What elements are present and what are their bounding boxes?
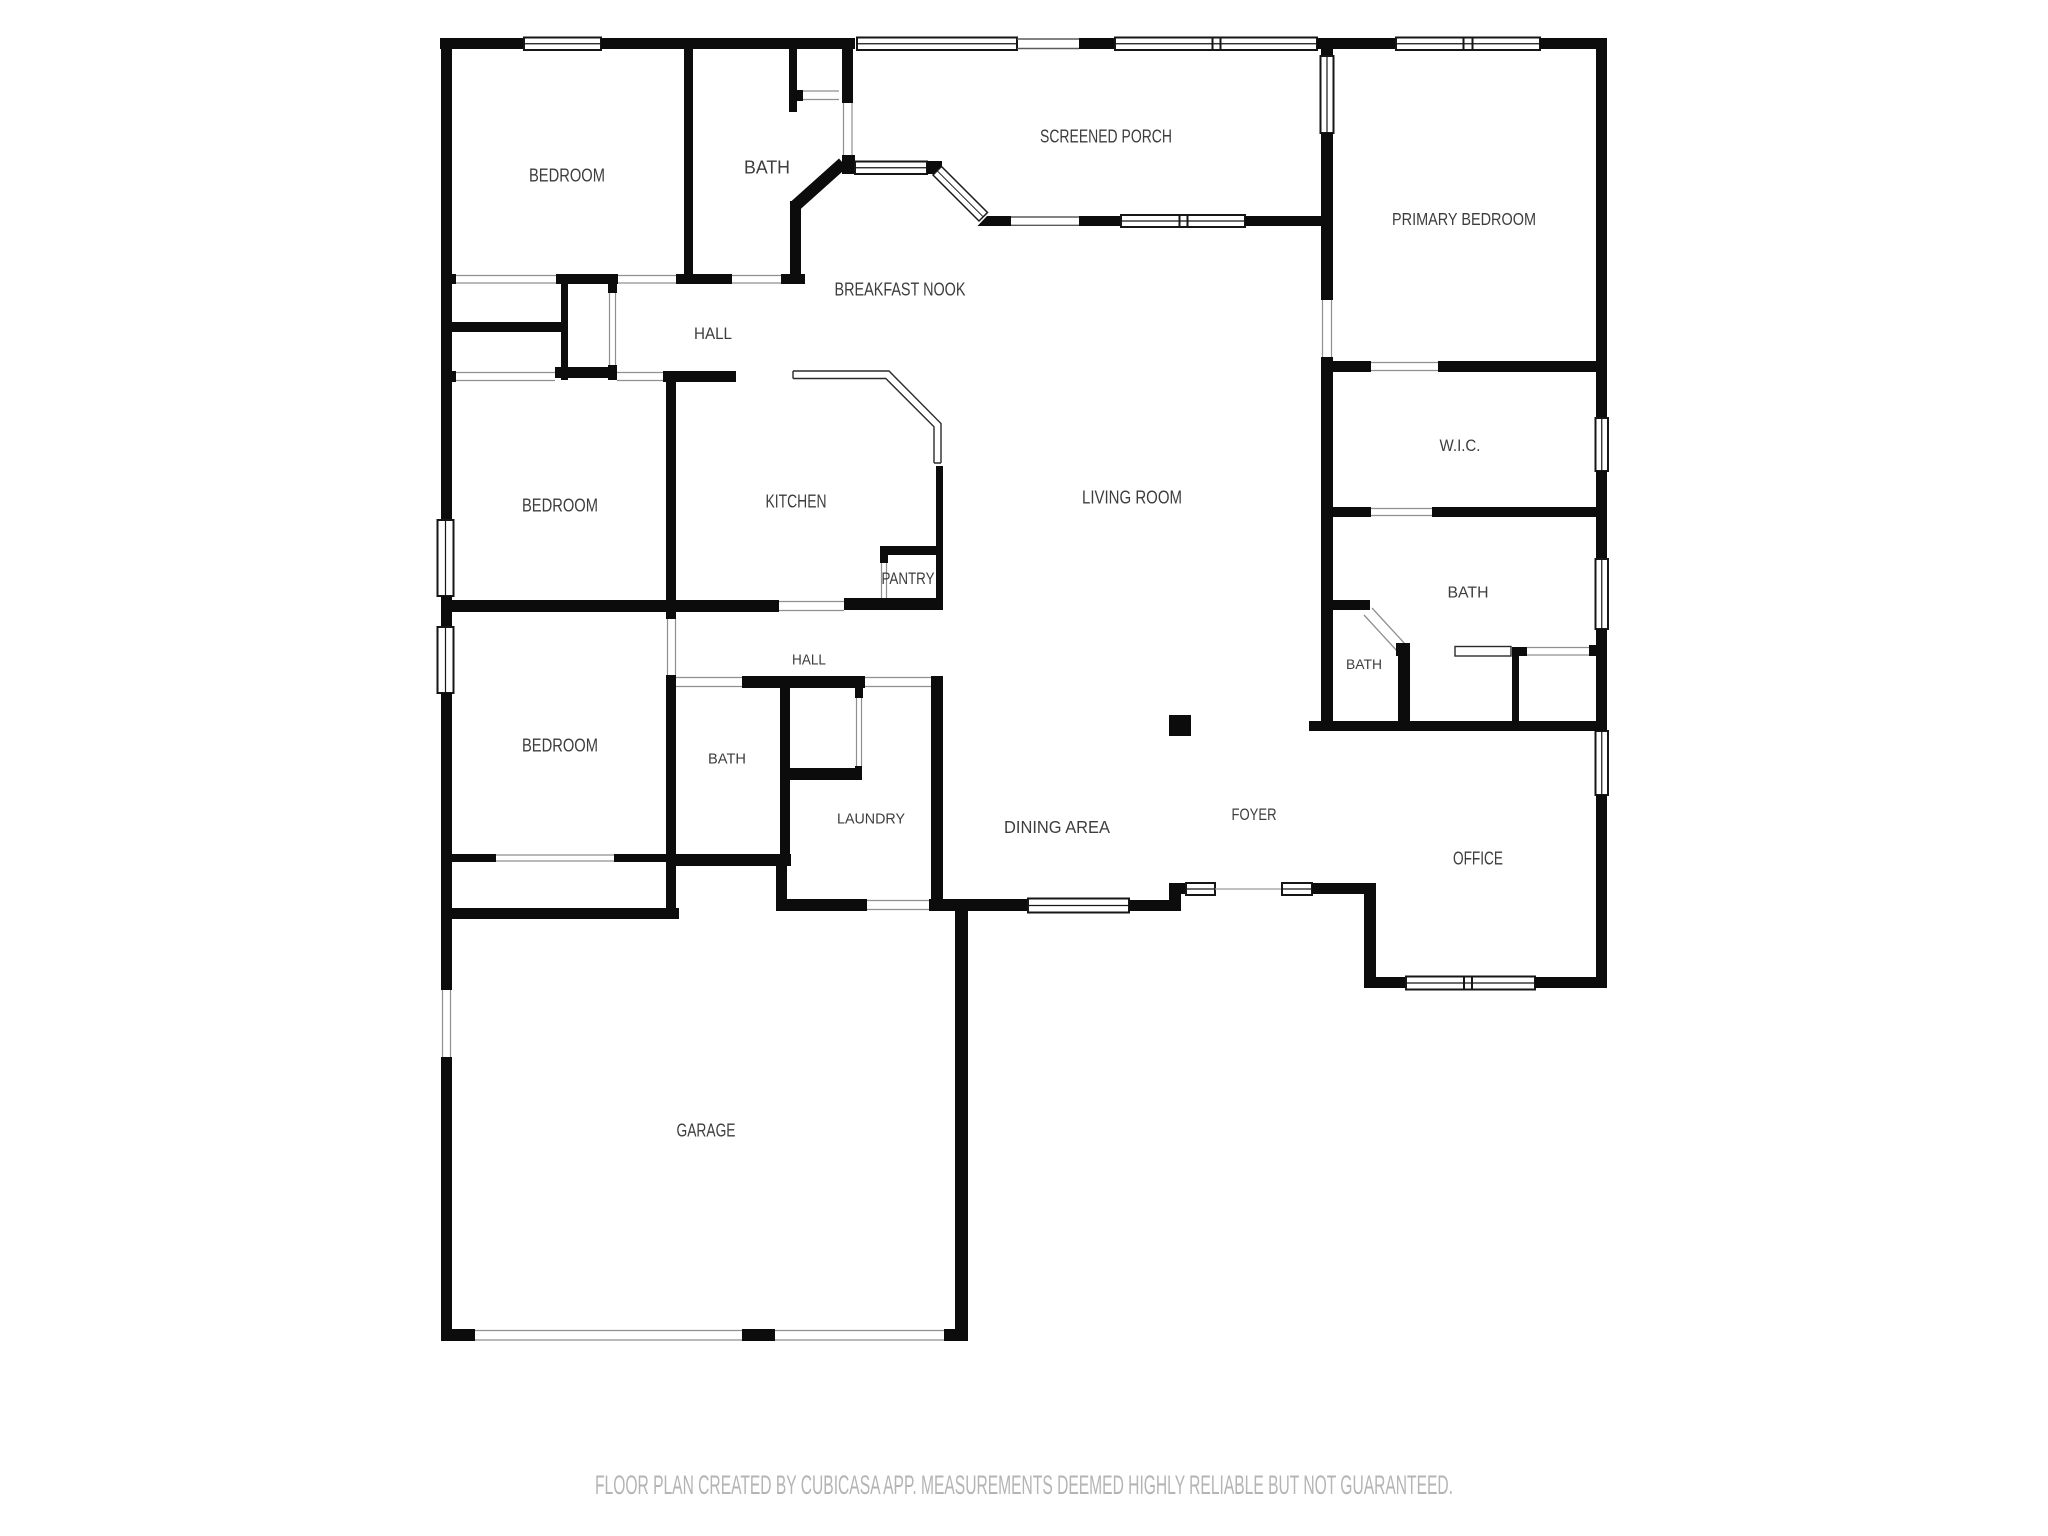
- svg-text:FLOOR PLAN CREATED BY CUBICASA: FLOOR PLAN CREATED BY CUBICASA APP. MEAS…: [595, 1470, 1453, 1500]
- svg-text:HALL: HALL: [694, 324, 732, 343]
- svg-text:OFFICE: OFFICE: [1453, 848, 1503, 868]
- svg-text:BREAKFAST NOOK: BREAKFAST NOOK: [835, 279, 966, 299]
- svg-text:PANTRY: PANTRY: [882, 569, 935, 588]
- svg-text:BATH: BATH: [1346, 657, 1382, 672]
- svg-text:HALL: HALL: [792, 652, 826, 668]
- svg-text:FOYER: FOYER: [1232, 805, 1277, 824]
- svg-text:SCREENED PORCH: SCREENED PORCH: [1040, 125, 1172, 146]
- svg-text:GARAGE: GARAGE: [677, 1120, 736, 1140]
- svg-text:LIVING ROOM: LIVING ROOM: [1082, 487, 1182, 507]
- svg-text:KITCHEN: KITCHEN: [766, 491, 827, 511]
- svg-text:BATH: BATH: [744, 157, 790, 177]
- svg-text:BEDROOM: BEDROOM: [522, 734, 598, 755]
- svg-text:W.I.C.: W.I.C.: [1440, 436, 1481, 455]
- svg-text:BEDROOM: BEDROOM: [522, 494, 598, 515]
- svg-text:BATH: BATH: [708, 750, 746, 767]
- svg-text:LAUNDRY: LAUNDRY: [837, 810, 905, 827]
- svg-text:BEDROOM: BEDROOM: [529, 164, 605, 185]
- svg-text:BATH: BATH: [1448, 585, 1489, 602]
- svg-text:PRIMARY BEDROOM: PRIMARY BEDROOM: [1392, 209, 1536, 229]
- svg-text:DINING AREA: DINING AREA: [1004, 817, 1110, 837]
